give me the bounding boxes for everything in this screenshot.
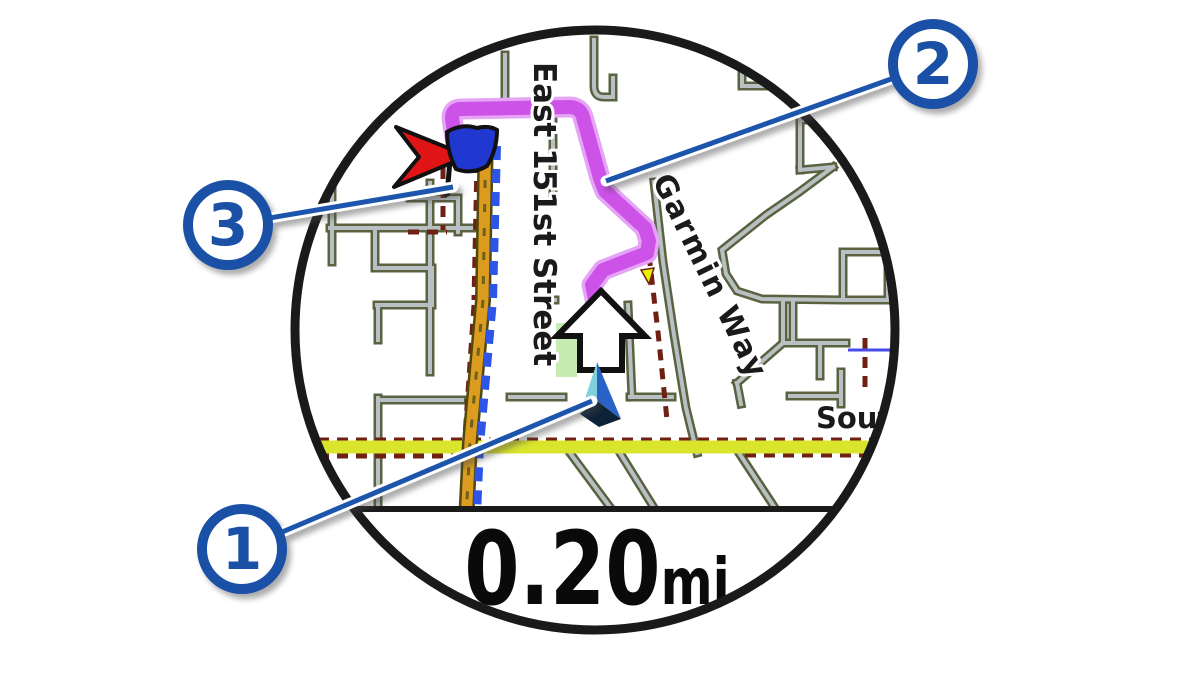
watch-navigation-figure: East 151st Street Garmin Way Sout [0,0,1200,676]
callout-2-number: 2 [913,30,953,98]
callout-1: 1 [202,509,282,589]
callout-2: 2 [893,24,973,104]
callout-3: 3 [188,185,268,265]
callout-3-number: 3 [208,191,248,259]
watch-face: East 151st Street Garmin Way Sout [295,30,896,632]
manual-illustration: East 151st Street Garmin Way Sout [0,0,1200,676]
blue-flag-icon [447,126,497,171]
street-label-east-151st: East 151st Street [526,62,562,366]
callout-1-number: 1 [222,515,262,583]
